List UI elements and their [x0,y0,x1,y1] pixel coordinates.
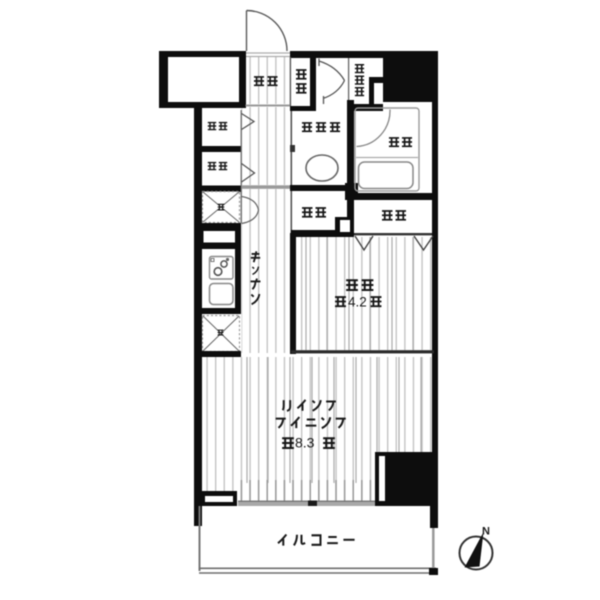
svg-text:8.3: 8.3 [295,435,315,451]
svg-text:N: N [482,526,490,538]
svg-text:4.2: 4.2 [348,295,367,310]
